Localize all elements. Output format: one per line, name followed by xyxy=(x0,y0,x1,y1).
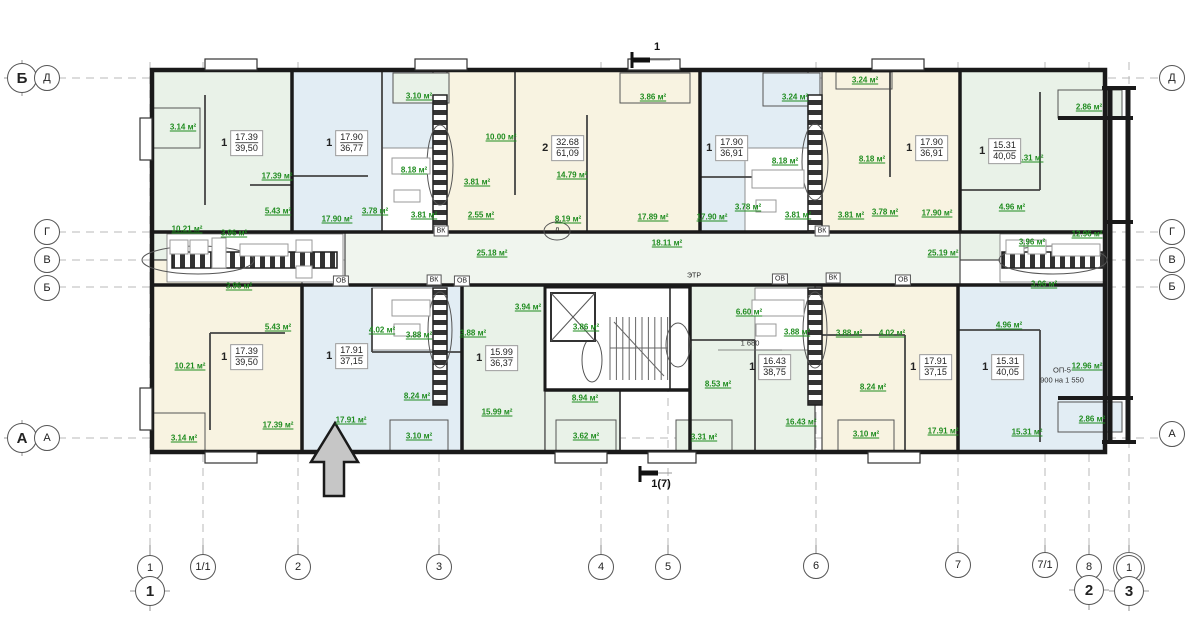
floor-plan: 3.14 м²17.39 м²5.43 м²10.21 м²3.96 м²3.1… xyxy=(0,0,1200,630)
plan-drawing xyxy=(0,0,1200,630)
